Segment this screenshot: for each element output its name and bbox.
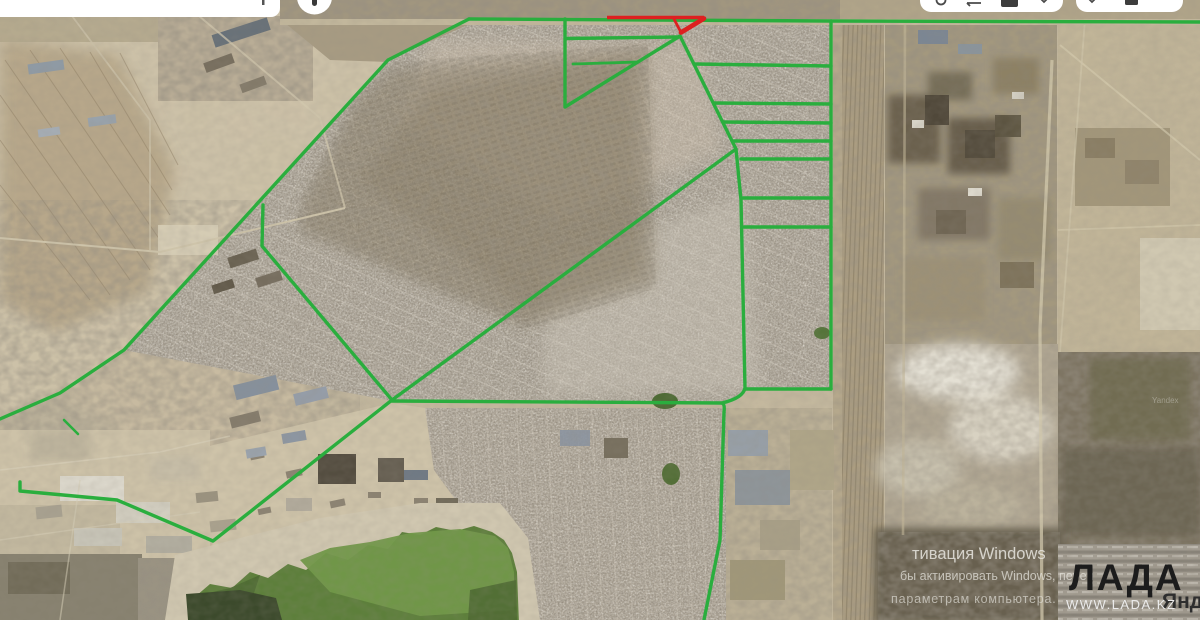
svg-text:тивация Windows: тивация Windows xyxy=(912,545,1046,563)
svg-text:ЛАДА: ЛАДА xyxy=(1069,557,1183,598)
svg-text:WWW.LADA.KZ: WWW.LADA.KZ xyxy=(1066,597,1176,612)
svg-text:бы активировать Windows, перей: бы активировать Windows, перей xyxy=(900,569,1094,583)
svg-text:параметрам компьютера.: параметрам компьютера. xyxy=(891,592,1057,606)
svg-text:Yandex: Yandex xyxy=(1152,396,1179,405)
